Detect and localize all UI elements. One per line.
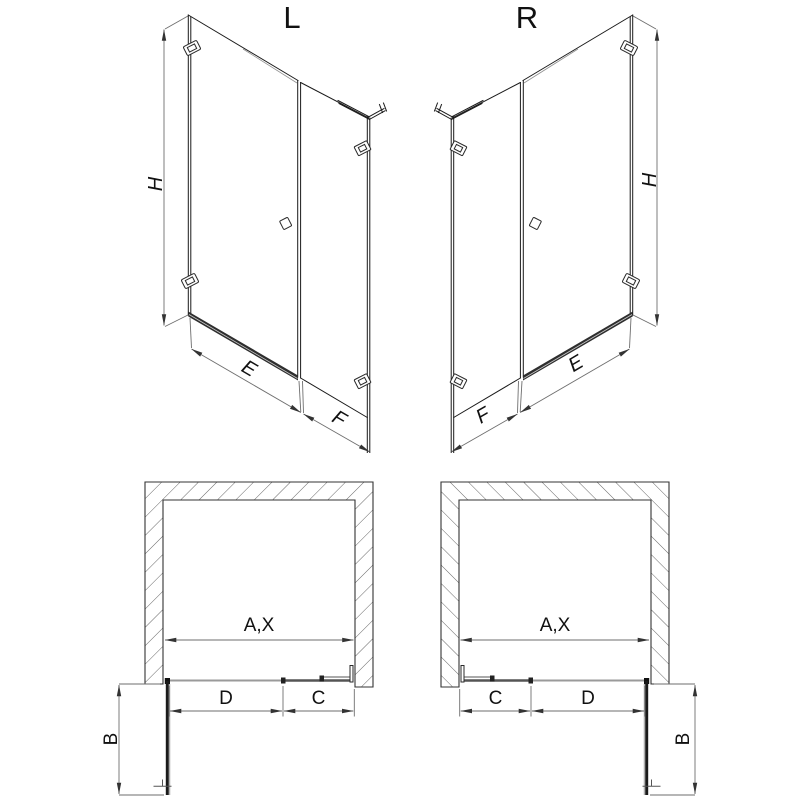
- left-view-title: L: [283, 0, 300, 35]
- right-view-door-width-label: E: [565, 351, 588, 377]
- left-view-height-label: H: [145, 176, 167, 191]
- left-perspective-view: L H E F: [145, 0, 387, 453]
- right-view-panel-width-label: F: [472, 402, 495, 428]
- right-perspective-view: R H E F: [435, 0, 662, 453]
- left-view-geometry: [164, 15, 387, 453]
- right-plan-swing-label: B: [673, 733, 694, 746]
- left-plan-opening-label: A,X: [244, 615, 275, 636]
- left-plan-geometry: [119, 482, 373, 795]
- left-plan-door-label: D: [219, 688, 233, 709]
- right-view-geometry: [435, 15, 658, 453]
- right-plan-view: A,X C D B: [441, 482, 695, 795]
- left-plan-view: A,X D C B: [101, 482, 373, 795]
- right-view-title: R: [516, 0, 538, 35]
- left-plan-panel-label: C: [312, 688, 326, 709]
- shower-enclosure-dimension-diagram: L H E F R H E F A,X D C B A,X C D B: [0, 0, 800, 800]
- left-plan-swing-label: B: [101, 733, 122, 746]
- left-view-panel-width-label: F: [328, 406, 351, 432]
- right-plan-door-label: D: [581, 688, 595, 709]
- right-plan-panel-label: C: [489, 688, 503, 709]
- right-view-height-label: H: [639, 172, 661, 187]
- right-plan-opening-label: A,X: [540, 615, 571, 636]
- right-plan-geometry: [441, 482, 695, 795]
- diagram-canvas: L H E F R H E F A,X D C B A,X C D B: [0, 0, 800, 800]
